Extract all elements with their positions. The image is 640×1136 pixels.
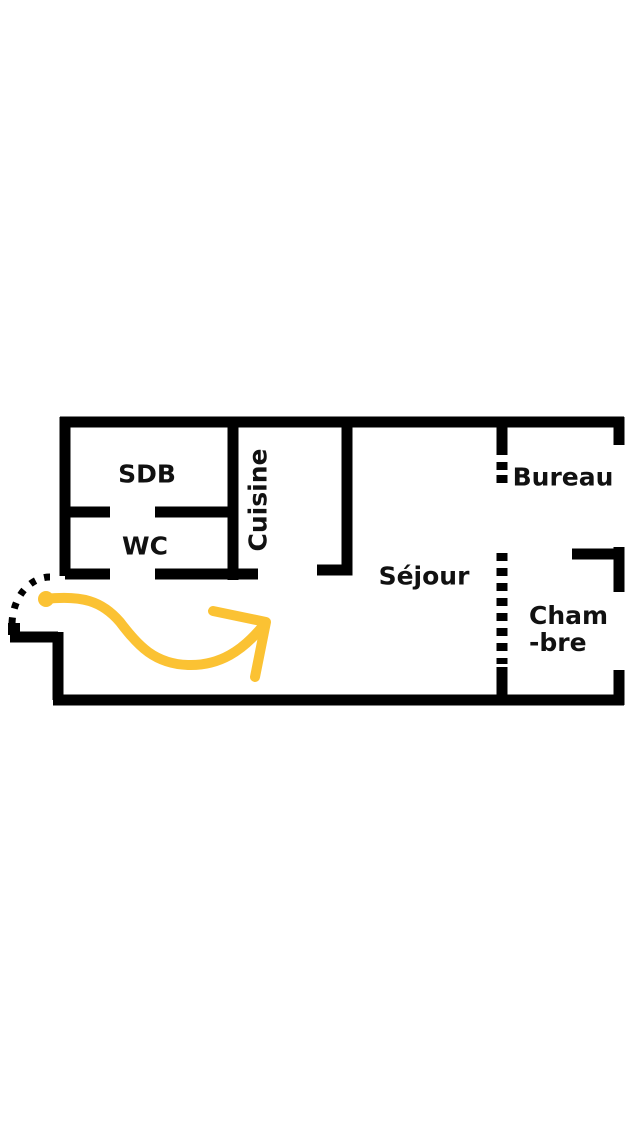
room-label-chambre-line1: Cham [529, 602, 608, 629]
entry-path-arrow-curve [45, 598, 262, 665]
floor-plan-drawing [0, 0, 640, 1136]
room-label-sejour: Séjour [379, 562, 470, 591]
walls [10, 417, 624, 705]
floor-plan-canvas: SDB WC Cuisine Séjour Bureau Cham -bre [0, 0, 640, 1136]
entry-path-arrow [45, 598, 266, 677]
room-label-bureau: Bureau [513, 463, 614, 492]
entry-door-post [8, 623, 20, 635]
entry-path-arrow-start-dot [38, 591, 54, 607]
room-label-sdb: SDB [118, 460, 176, 489]
cuisine-right-wall [317, 417, 347, 570]
room-label-wc: WC [122, 532, 168, 561]
room-label-cuisine: Cuisine [244, 449, 273, 552]
room-label-chambre-line2: -bre [529, 629, 608, 656]
room-label-chambre: Cham -bre [529, 602, 608, 656]
